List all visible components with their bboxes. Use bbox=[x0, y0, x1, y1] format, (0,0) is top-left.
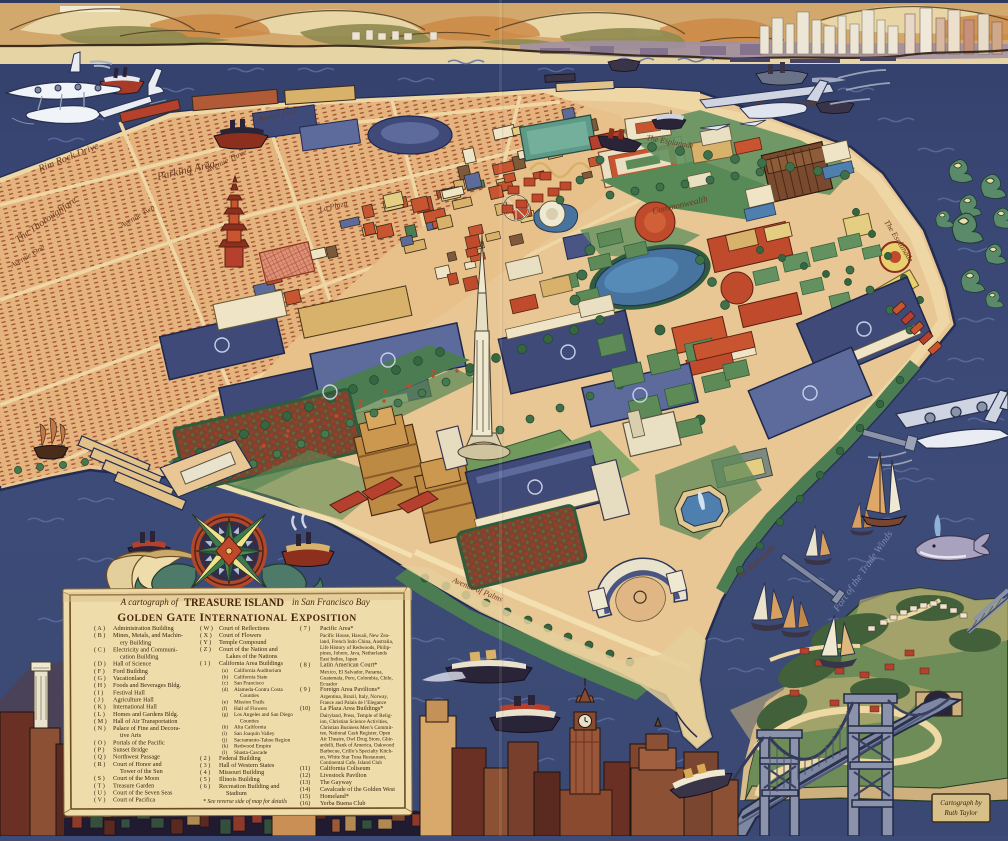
svg-text:Stadium: Stadium bbox=[226, 790, 247, 797]
svg-text:Alameda-Contra Costa: Alameda-Contra Costa bbox=[234, 687, 283, 693]
svg-text:(i): (i) bbox=[222, 730, 227, 737]
svg-text:Alta California: Alta California bbox=[234, 724, 267, 731]
svg-text:( 3 ): ( 3 ) bbox=[200, 762, 210, 769]
svg-text:TREASURE ISLAND: TREASURE ISLAND bbox=[184, 597, 284, 609]
svg-text:Illinois Building: Illinois Building bbox=[219, 776, 260, 783]
svg-text:Cartograph by: Cartograph by bbox=[940, 799, 982, 807]
svg-text:La Plaza Area Buildings*: La Plaza Area Buildings* bbox=[320, 705, 383, 712]
svg-text:Vacationland: Vacationland bbox=[113, 675, 146, 682]
svg-text:Agriculture Hall: Agriculture Hall bbox=[113, 697, 154, 704]
svg-text:Hall of Science: Hall of Science bbox=[113, 661, 151, 668]
svg-text:Court of Pacifica: Court of Pacifica bbox=[113, 797, 156, 804]
svg-text:( 7 ): ( 7 ) bbox=[300, 625, 310, 632]
svg-text:The Gayway: The Gayway bbox=[320, 779, 353, 786]
svg-text:Federal Building: Federal Building bbox=[219, 755, 261, 762]
svg-text:Mines, Metals, and Machin-: Mines, Metals, and Machin- bbox=[113, 632, 183, 639]
svg-text:( K ): ( K ) bbox=[94, 704, 106, 711]
svg-text:Sunset Bridge: Sunset Bridge bbox=[113, 747, 148, 754]
svg-text:( J ): ( J ) bbox=[94, 697, 104, 704]
svg-text:Yerba Buena Club: Yerba Buena Club bbox=[320, 800, 365, 807]
svg-text:Ruth Taylor: Ruth Taylor bbox=[944, 809, 978, 817]
svg-text:Treasure Garden: Treasure Garden bbox=[113, 782, 154, 789]
svg-text:A cartograph of: A cartograph of bbox=[120, 597, 180, 607]
svg-text:( V ): ( V ) bbox=[94, 797, 105, 804]
svg-text:( 5 ): ( 5 ) bbox=[200, 776, 210, 783]
svg-text:( Q ): ( Q ) bbox=[94, 754, 106, 761]
svg-text:Ford Building: Ford Building bbox=[113, 668, 148, 675]
svg-text:( F ): ( F ) bbox=[94, 668, 105, 675]
svg-text:Livestock Pavilion: Livestock Pavilion bbox=[320, 772, 367, 779]
svg-text:( W ): ( W ) bbox=[200, 625, 213, 632]
svg-text:( N ): ( N ) bbox=[94, 725, 106, 732]
svg-text:( I ): ( I ) bbox=[94, 689, 103, 696]
svg-text:Homes and Gardens Bldg.: Homes and Gardens Bldg. bbox=[113, 711, 179, 718]
svg-text:Counties: Counties bbox=[240, 693, 259, 699]
svg-text:Court of Reflections: Court of Reflections bbox=[219, 625, 270, 632]
svg-text:cation Building: cation Building bbox=[120, 654, 158, 661]
svg-text:(b): (b) bbox=[222, 673, 228, 680]
svg-text:(g): (g) bbox=[222, 711, 228, 718]
svg-text:(10): (10) bbox=[300, 705, 310, 712]
svg-text:(k): (k) bbox=[222, 743, 228, 750]
svg-text:in San Francisco Bay: in San Francisco Bay bbox=[292, 597, 370, 607]
svg-text:Portals of the Pacific: Portals of the Pacific bbox=[113, 739, 165, 746]
svg-text:tive Arts: tive Arts bbox=[120, 732, 142, 739]
svg-text:Recreation Building and: Recreation Building and bbox=[219, 783, 280, 790]
svg-text:Festival Hall: Festival Hall bbox=[113, 689, 145, 696]
svg-text:( 8 ): ( 8 ) bbox=[300, 662, 310, 669]
svg-text:Court of Honor and: Court of Honor and bbox=[113, 761, 163, 768]
svg-text:Foreign Area Pavilions*: Foreign Area Pavilions* bbox=[320, 686, 380, 693]
svg-text:( M ): ( M ) bbox=[94, 718, 107, 725]
svg-text:Court of the Moon: Court of the Moon bbox=[113, 775, 159, 782]
svg-text:Lakes of the Nations: Lakes of the Nations bbox=[226, 653, 278, 660]
svg-text:( G ): ( G ) bbox=[94, 675, 106, 682]
svg-text:( S ): ( S ) bbox=[94, 775, 105, 782]
svg-text:Palace of Fine and Decora-: Palace of Fine and Decora- bbox=[113, 725, 180, 732]
svg-text:(16): (16) bbox=[300, 800, 310, 807]
svg-text:Hall of Flowers: Hall of Flowers bbox=[234, 705, 267, 712]
svg-text:Redwood Empire: Redwood Empire bbox=[234, 744, 272, 750]
svg-text:(11): (11) bbox=[300, 765, 310, 772]
svg-text:( P ): ( P ) bbox=[94, 747, 104, 754]
svg-text:Tower of the Sun: Tower of the Sun bbox=[120, 768, 163, 775]
svg-text:(a): (a) bbox=[222, 667, 228, 674]
svg-text:( H ): ( H ) bbox=[94, 682, 106, 689]
svg-text:Mission Trails: Mission Trails bbox=[234, 700, 264, 706]
svg-text:Hall of Western States: Hall of Western States bbox=[219, 762, 275, 769]
svg-text:( Z ): ( Z ) bbox=[200, 646, 211, 653]
svg-text:( 4 ): ( 4 ) bbox=[200, 769, 210, 776]
svg-text:( A ): ( A ) bbox=[94, 625, 105, 632]
svg-text:San Francisco: San Francisco bbox=[234, 681, 264, 687]
svg-text:Sacramento-Tahoe Region: Sacramento-Tahoe Region bbox=[234, 737, 291, 743]
svg-text:ery Building: ery Building bbox=[120, 639, 151, 646]
svg-text:( Y ): ( Y ) bbox=[200, 639, 211, 646]
svg-text:( 1 ): ( 1 ) bbox=[200, 660, 210, 667]
svg-text:( B ): ( B ) bbox=[94, 632, 105, 639]
svg-text:( D ): ( D ) bbox=[94, 661, 106, 668]
svg-text:(c): (c) bbox=[222, 680, 228, 687]
svg-text:Administration Building: Administration Building bbox=[113, 625, 174, 632]
svg-text:Northwest Passage: Northwest Passage bbox=[113, 754, 160, 761]
svg-text:Counties: Counties bbox=[240, 718, 259, 724]
svg-text:( R ): ( R ) bbox=[94, 761, 105, 768]
svg-text:( X ): ( X ) bbox=[200, 632, 212, 639]
svg-text:(13): (13) bbox=[300, 779, 310, 786]
svg-text:(14): (14) bbox=[300, 786, 310, 793]
svg-text:(h): (h) bbox=[222, 724, 228, 731]
svg-text:Court of Flowers: Court of Flowers bbox=[219, 632, 262, 639]
svg-text:( L ): ( L ) bbox=[94, 711, 105, 718]
svg-text:(e): (e) bbox=[222, 699, 228, 706]
svg-text:* See reverse side of map for: * See reverse side of map for details bbox=[203, 798, 288, 805]
svg-text:(12): (12) bbox=[300, 772, 310, 779]
svg-text:(d): (d) bbox=[222, 686, 228, 693]
svg-text:Foods and Beverages Bldg.: Foods and Beverages Bldg. bbox=[113, 682, 182, 689]
svg-text:San Joaquin Valley: San Joaquin Valley bbox=[234, 731, 275, 737]
svg-text:California Area Buildings: California Area Buildings bbox=[219, 660, 284, 667]
svg-text:( U ): ( U ) bbox=[94, 789, 106, 796]
svg-text:California State: California State bbox=[234, 673, 268, 680]
svg-text:(15): (15) bbox=[300, 793, 310, 800]
svg-text:( 2 ): ( 2 ) bbox=[200, 755, 210, 762]
svg-text:Homeland*: Homeland* bbox=[320, 793, 349, 800]
svg-text:Missouri Building: Missouri Building bbox=[219, 769, 264, 776]
svg-text:California Coliseum: California Coliseum bbox=[320, 765, 371, 772]
svg-text:Cavalcade of the Golden West: Cavalcade of the Golden West bbox=[320, 786, 395, 793]
svg-text:(f): (f) bbox=[222, 705, 228, 712]
svg-text:Court of the Seven Seas: Court of the Seven Seas bbox=[113, 789, 173, 796]
svg-text:( C ): ( C ) bbox=[94, 646, 105, 653]
svg-text:Latin American Court*: Latin American Court* bbox=[320, 662, 377, 669]
svg-text:Court of the Nation and: Court of the Nation and bbox=[219, 646, 279, 653]
svg-text:Pacific Area*: Pacific Area* bbox=[320, 625, 354, 632]
svg-text:( 6 ): ( 6 ) bbox=[200, 783, 210, 790]
svg-text:International Hall: International Hall bbox=[113, 704, 157, 711]
svg-text:Los Angeles and San Diego: Los Angeles and San Diego bbox=[234, 712, 293, 718]
svg-text:California Auditorium: California Auditorium bbox=[234, 667, 282, 674]
svg-text:GOLDEN GATE INTERNATIONAL EXPO: GOLDEN GATE INTERNATIONAL EXPOSITION bbox=[117, 612, 357, 624]
svg-text:Temple Compound: Temple Compound bbox=[219, 639, 267, 646]
svg-text:(j): (j) bbox=[222, 736, 227, 743]
svg-text:( O ): ( O ) bbox=[94, 739, 106, 746]
svg-text:Electricity and Communi-: Electricity and Communi- bbox=[113, 646, 178, 653]
svg-text:Hall of Air Transportation: Hall of Air Transportation bbox=[113, 718, 177, 725]
svg-text:( T ): ( T ) bbox=[94, 782, 105, 789]
svg-text:( 9 ): ( 9 ) bbox=[300, 686, 310, 693]
